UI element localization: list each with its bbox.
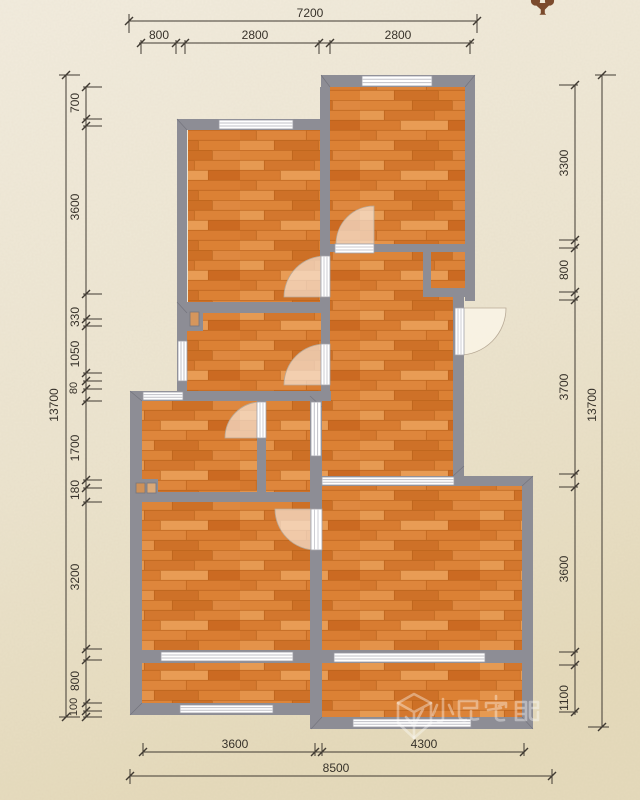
- svg-text:3600: 3600: [68, 193, 82, 220]
- svg-text:800: 800: [68, 671, 82, 691]
- svg-text:2800: 2800: [385, 28, 412, 42]
- svg-text:2800: 2800: [242, 28, 269, 42]
- svg-text:1050: 1050: [68, 340, 82, 367]
- svg-text:1100: 1100: [557, 685, 571, 711]
- svg-text:3200: 3200: [68, 563, 82, 590]
- svg-text:1700: 1700: [68, 434, 82, 461]
- svg-text:13700: 13700: [585, 388, 599, 422]
- svg-text:100: 100: [68, 698, 80, 716]
- svg-text:700: 700: [68, 93, 82, 113]
- svg-text:3700: 3700: [557, 373, 571, 400]
- svg-text:330: 330: [68, 307, 82, 327]
- svg-text:3600: 3600: [222, 737, 249, 751]
- svg-text:13700: 13700: [47, 388, 61, 422]
- svg-text:800: 800: [149, 28, 169, 42]
- svg-text:4300: 4300: [411, 737, 438, 751]
- svg-text:3300: 3300: [557, 149, 571, 176]
- svg-text:80: 80: [68, 382, 80, 394]
- svg-text:800: 800: [557, 260, 571, 280]
- svg-text:180: 180: [68, 480, 82, 500]
- svg-text:3600: 3600: [557, 555, 571, 582]
- svg-text:8500: 8500: [323, 761, 350, 775]
- svg-text:7200: 7200: [297, 6, 324, 20]
